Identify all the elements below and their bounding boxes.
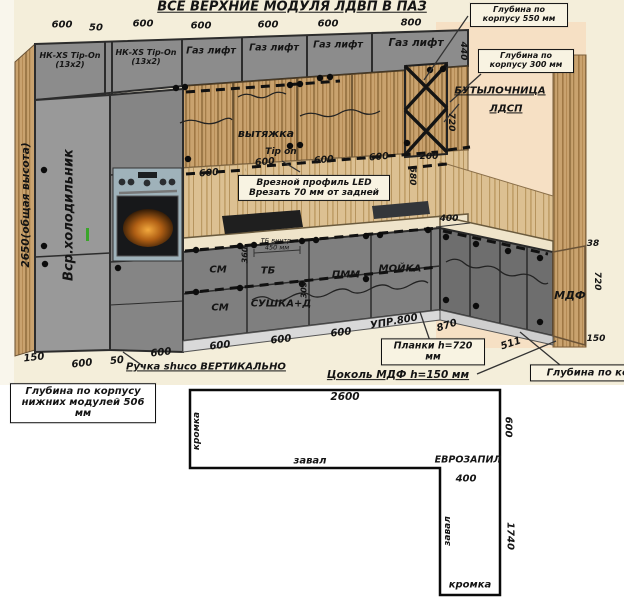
countertop-plan-outline: [190, 390, 500, 595]
left-side-wood-panel: [15, 44, 35, 356]
fridge-cabinet: [35, 95, 110, 352]
drawing-canvas: [0, 0, 624, 600]
mdf-end-panel: [553, 246, 585, 345]
paper-left-margin: [0, 0, 14, 385]
built-in-oven: [113, 168, 182, 261]
spellcheck-squiggle: [86, 228, 89, 241]
kitchen-design-drawing: ВСЕ ВЕРХНИЕ МОДУЛЯ ЛДВП В ПАЗ60050600600…: [0, 0, 624, 600]
